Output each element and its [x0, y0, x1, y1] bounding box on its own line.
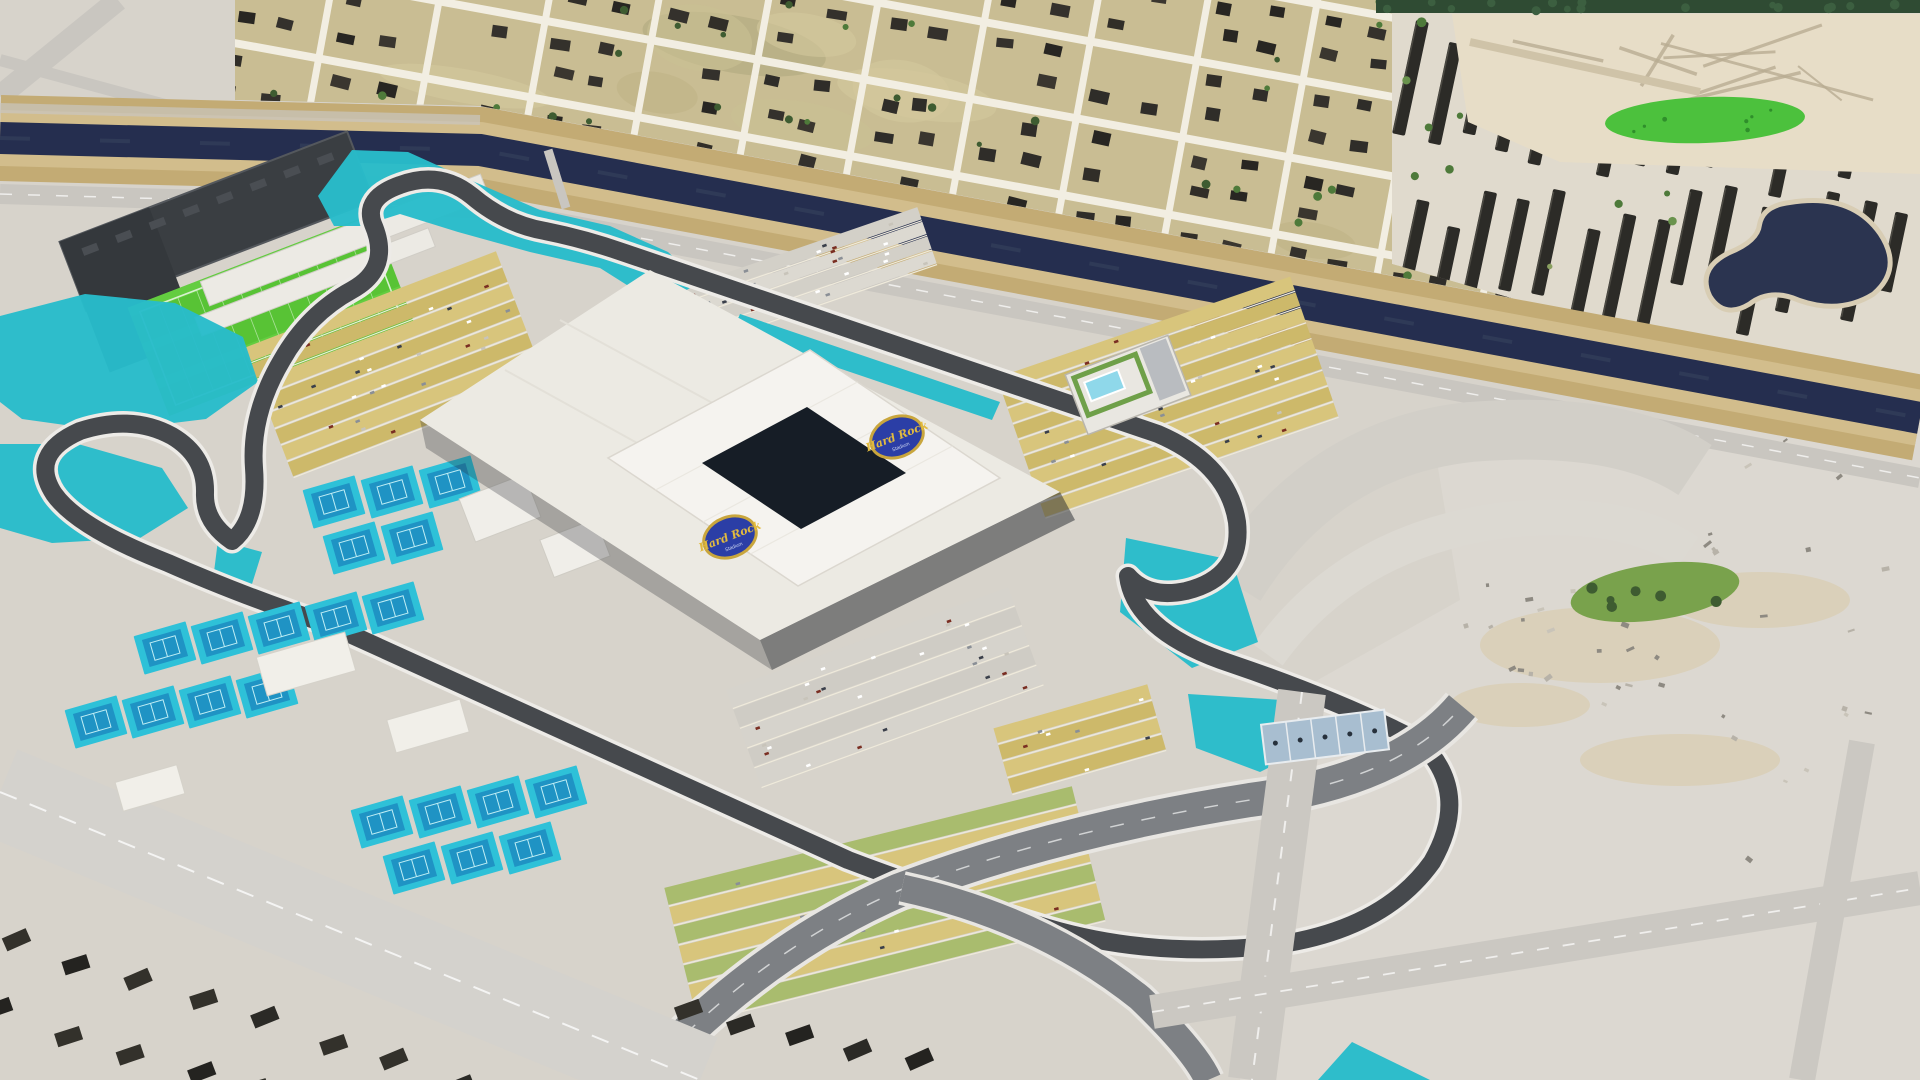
tree-line-top [1376, 0, 1920, 15]
aerial-photo: Hard Rock Stadium Hard Rock Stadium [0, 0, 1920, 1080]
aerial-scene: Hard Rock Stadium Hard Rock Stadium [0, 0, 1920, 1080]
